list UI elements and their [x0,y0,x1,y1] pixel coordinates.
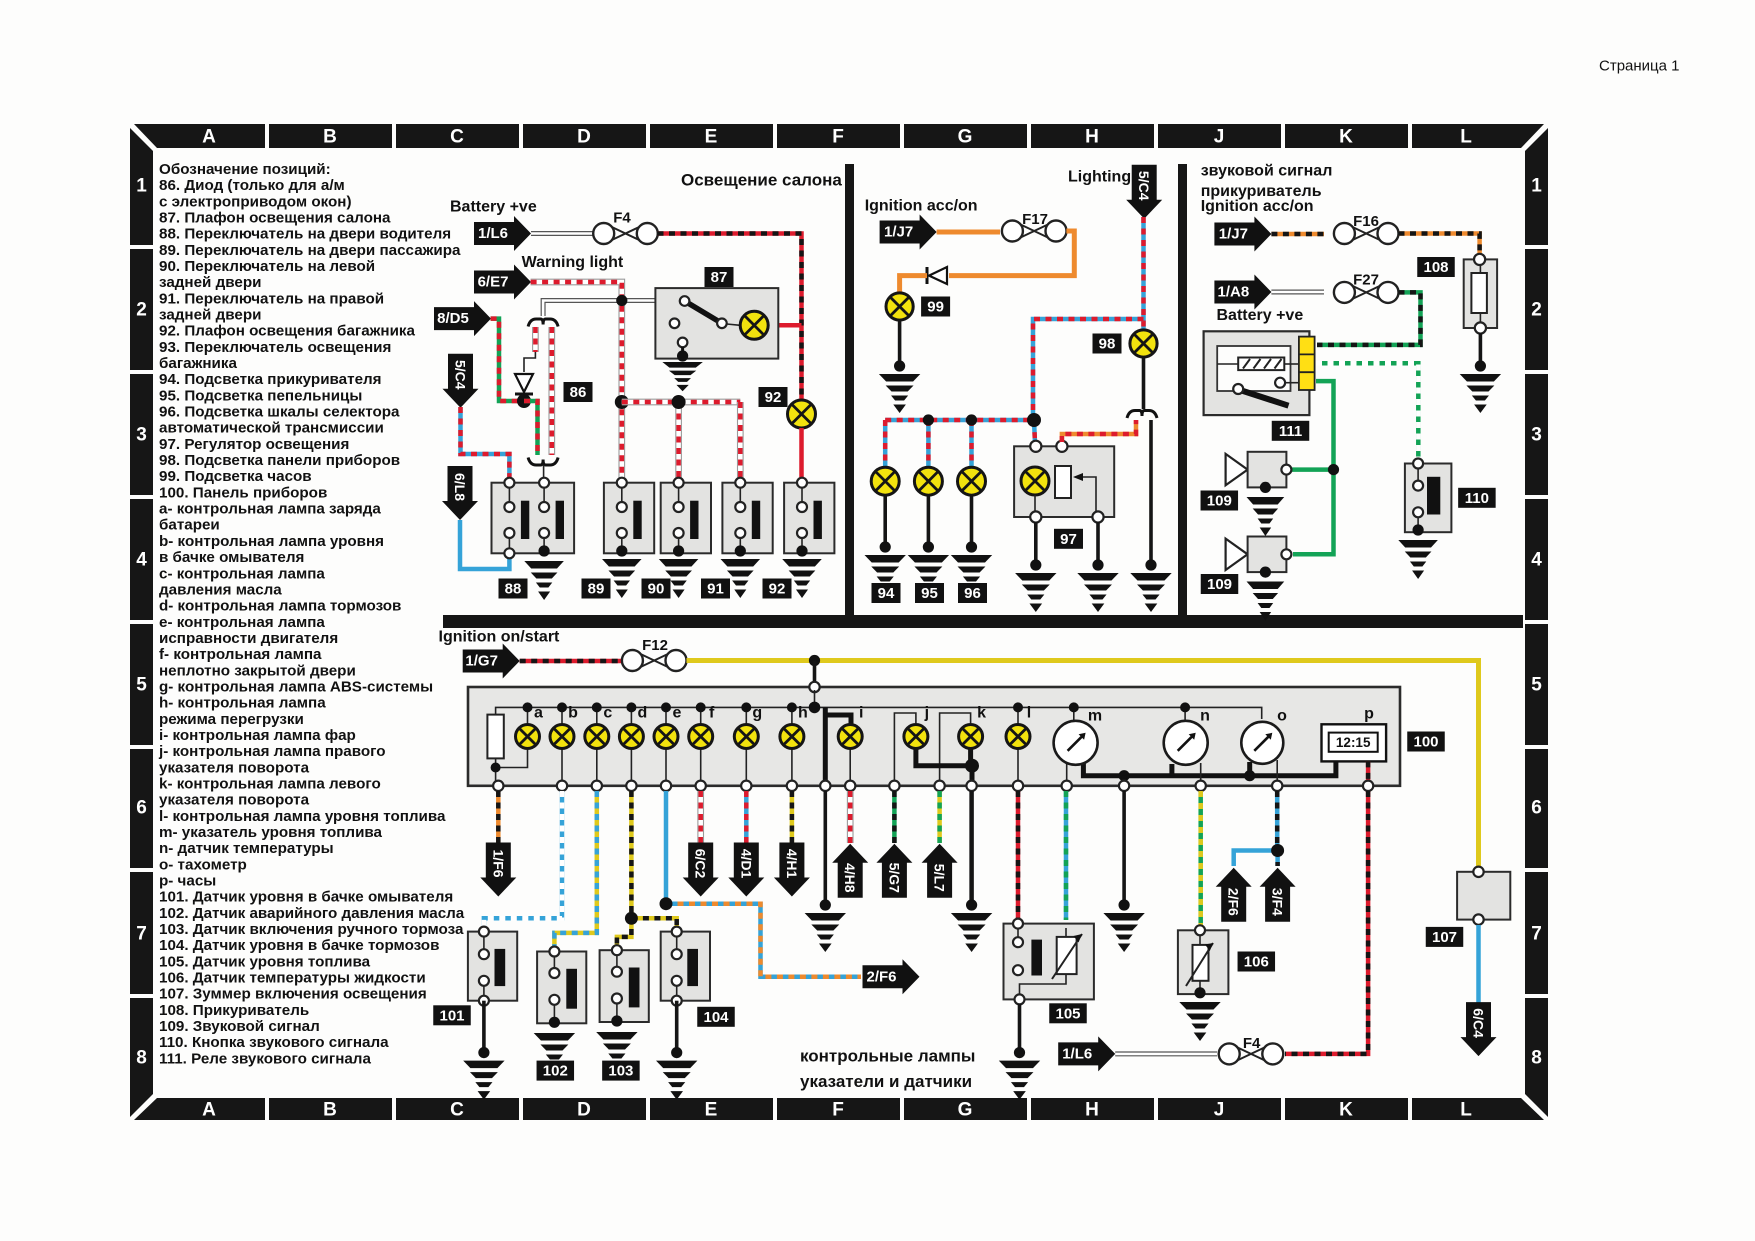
svg-text:105: 105 [1055,1005,1080,1022]
svg-text:f: f [709,705,715,722]
svg-text:86. Диод (только для а/м: 86. Диод (только для а/м [159,177,345,194]
svg-text:102. Датчик аварийного давлени: 102. Датчик аварийного давления масла [159,905,465,922]
svg-text:95. Подсветка пепельницы: 95. Подсветка пепельницы [159,387,362,404]
svg-text:багажника: багажника [159,355,237,372]
svg-text:Ignition acc/on: Ignition acc/on [865,198,978,215]
svg-text:6/C2: 6/C2 [693,849,709,879]
svg-text:k: k [977,705,986,722]
svg-text:C: C [450,127,464,148]
svg-text:d: d [638,705,648,722]
svg-text:101: 101 [439,1007,464,1024]
svg-text:g: g [752,705,762,722]
svg-text:1: 1 [1531,176,1542,197]
svg-text:n: n [1200,708,1210,725]
svg-text:контрольные лампы: контрольные лампы [800,1047,975,1066]
svg-text:исправности двигателя: исправности двигателя [159,630,338,647]
svg-text:c: c [603,705,612,722]
svg-text:давления масла: давления масла [159,581,282,598]
svg-text:F: F [832,127,844,148]
svg-text:109: 109 [1207,493,1232,510]
svg-text:102: 102 [543,1063,568,1080]
svg-text:F27: F27 [1353,272,1379,289]
svg-text:батареи: батареи [159,517,220,534]
svg-text:H: H [1085,127,1099,148]
svg-text:A: A [202,1100,216,1121]
svg-text:110: 110 [1465,490,1489,507]
svg-text:6/L8: 6/L8 [452,473,468,501]
svg-text:m: m [1088,708,1102,725]
svg-text:95: 95 [921,585,938,602]
svg-text:3: 3 [1531,425,1542,446]
svg-text:1/G7: 1/G7 [465,653,498,670]
svg-text:5: 5 [1531,675,1542,696]
svg-text:1/J7: 1/J7 [1219,226,1248,243]
svg-text:K: K [1339,1100,1353,1121]
svg-text:режима перегрузки: режима перегрузки [159,711,304,728]
svg-text:задней двери: задней двери [159,307,261,324]
svg-text:e- контрольная лампа: e- контрольная лампа [159,614,325,631]
svg-text:93. Переключатель освещения: 93. Переключатель освещения [159,339,391,356]
svg-text:104: 104 [703,1009,729,1026]
svg-text:автоматической трансмиссии: автоматической трансмиссии [159,420,384,437]
svg-text:4: 4 [1531,550,1542,571]
svg-text:p: p [1364,706,1374,723]
svg-text:5/L7: 5/L7 [932,864,948,892]
svg-text:97: 97 [1060,531,1077,548]
svg-text:p- часы: p- часы [159,872,216,889]
svg-text:i- контрольная лампа фар: i- контрольная лампа фар [159,727,356,744]
svg-text:92: 92 [765,389,782,406]
svg-text:109. Звуковой сигнал: 109. Звуковой сигнал [159,1018,320,1035]
svg-text:D: D [577,127,591,148]
svg-text:8: 8 [1531,1048,1542,1069]
svg-text:указатели и датчики: указатели и датчики [800,1072,972,1091]
svg-text:97. Регулятор освещения: 97. Регулятор освещения [159,436,349,453]
svg-text:a: a [534,705,543,722]
svg-text:104. Датчик уровня в бачке тор: 104. Датчик уровня в бачке тормозов [159,937,439,954]
svg-text:90. Переключатель на левой: 90. Переключатель на левой [159,258,375,275]
svg-text:G: G [958,127,973,148]
svg-text:F17: F17 [1022,211,1048,228]
svg-text:89. Переключатель на двери пас: 89. Переключатель на двери пассажира [159,242,461,259]
svg-text:108: 108 [1423,259,1448,276]
svg-text:2: 2 [1531,300,1542,321]
svg-text:106. Датчик температуры жидкос: 106. Датчик температуры жидкости [159,970,426,987]
svg-text:7: 7 [1531,924,1542,945]
svg-text:n- датчик температуры: n- датчик температуры [159,840,334,857]
svg-text:J: J [1214,1100,1225,1121]
svg-text:6/C4: 6/C4 [1471,1008,1487,1038]
svg-text:L: L [1460,127,1472,148]
svg-text:Обозначение позиций:: Обозначение позиций: [159,161,331,178]
svg-text:B: B [323,1100,337,1121]
svg-text:h: h [798,705,808,722]
svg-text:2/F6: 2/F6 [866,968,896,985]
svg-text:указателя поворота: указателя поворота [159,792,310,809]
svg-text:12:15: 12:15 [1336,735,1371,750]
svg-text:a- контрольная лампа заряда: a- контрольная лампа заряда [159,501,381,518]
svg-text:k- контрольная лампа левого: k- контрольная лампа левого [159,775,381,792]
svg-text:f- контрольная лампа: f- контрольная лампа [159,646,322,663]
svg-text:D: D [577,1100,591,1121]
svg-text:m- указатель уровня топлива: m- указатель уровня топлива [159,824,383,841]
svg-text:b- контрольная лампа уровня: b- контрольная лампа уровня [159,533,384,550]
svg-text:91: 91 [707,581,724,598]
svg-text:4/H1: 4/H1 [784,849,800,879]
svg-text:задней двери: задней двери [159,274,261,291]
svg-text:e: e [673,705,682,722]
svg-text:92. Плафон освещения багажника: 92. Плафон освещения багажника [159,323,416,340]
svg-text:6: 6 [136,798,147,819]
svg-text:91. Переключатель на правой: 91. Переключатель на правой [159,290,384,307]
svg-text:l- контрольная лампа уровня то: l- контрольная лампа уровня топлива [159,808,446,825]
svg-text:L: L [1460,1100,1472,1121]
svg-text:87. Плафон освещения салона: 87. Плафон освещения салона [159,210,391,227]
svg-text:звуковой сигнал: звуковой сигнал [1201,163,1333,180]
svg-text:111. Реле звукового сигнала: 111. Реле звукового сигнала [159,1050,371,1067]
svg-text:103: 103 [608,1063,633,1080]
svg-text:105. Датчик уровня топлива: 105. Датчик уровня топлива [159,953,371,970]
svg-text:96. Подсветка шкалы селектора: 96. Подсветка шкалы селектора [159,404,400,421]
svg-text:d- контрольная лампа тормозов: d- контрольная лампа тормозов [159,598,401,615]
svg-text:8/D5: 8/D5 [437,310,469,327]
svg-text:E: E [705,1100,718,1121]
svg-text:1/L6: 1/L6 [1062,1045,1092,1062]
svg-text:109: 109 [1207,576,1232,593]
svg-text:j- контрольная лампа правого: j- контрольная лампа правого [158,743,386,760]
svg-text:106: 106 [1244,954,1269,971]
svg-text:4: 4 [136,550,147,571]
svg-text:J: J [1214,127,1225,148]
svg-text:4/D1: 4/D1 [738,849,754,879]
svg-text:указателя поворота: указателя поворота [159,759,310,776]
svg-text:6/E7: 6/E7 [478,274,509,291]
svg-text:с электроприводом окон): с электроприводом окон) [159,193,352,210]
svg-text:H: H [1085,1100,1099,1121]
svg-text:1/F6: 1/F6 [490,849,506,877]
svg-text:86: 86 [570,384,587,401]
svg-text:Ignition on/start: Ignition on/start [439,629,561,646]
svg-text:100: 100 [1413,734,1438,751]
svg-text:2: 2 [136,300,147,321]
svg-text:C: C [450,1100,464,1121]
svg-text:F16: F16 [1353,213,1379,230]
svg-text:h- контрольная лампа: h- контрольная лампа [159,695,326,712]
svg-text:4/H8: 4/H8 [842,863,858,893]
svg-text:B: B [323,127,337,148]
svg-text:94: 94 [878,585,895,602]
svg-text:b: b [568,705,578,722]
svg-text:в бачке омывателя: в бачке омывателя [159,549,304,566]
svg-text:111: 111 [1279,423,1302,440]
svg-text:j: j [924,705,929,722]
svg-text:89: 89 [588,581,605,598]
svg-text:Battery +ve: Battery +ve [450,199,537,216]
svg-text:108. Прикуриватель: 108. Прикуриватель [159,1002,309,1019]
svg-text:F12: F12 [642,637,668,654]
svg-text:o: o [1277,708,1287,725]
svg-text:g- контрольная лампа ABS-систе: g- контрольная лампа ABS-системы [159,678,433,695]
svg-text:92: 92 [769,581,786,598]
svg-text:99: 99 [927,299,944,316]
svg-text:99. Подсветка часов: 99. Подсветка часов [159,468,312,485]
svg-text:103. Датчик включения ручного: 103. Датчик включения ручного тормоза [159,921,464,938]
svg-text:7: 7 [136,924,147,945]
svg-text:94. Подсветка прикуривателя: 94. Подсветка прикуривателя [159,371,382,388]
svg-text:Освещение салона: Освещение салона [681,171,842,190]
svg-text:100. Панель приборов: 100. Панель приборов [159,484,327,501]
svg-text:K: K [1339,127,1353,148]
svg-text:6: 6 [1531,798,1542,819]
svg-text:i: i [859,705,863,722]
svg-text:1/J7: 1/J7 [884,224,913,241]
svg-text:A: A [202,127,216,148]
svg-text:1/A8: 1/A8 [1218,284,1250,301]
svg-text:F4: F4 [1243,1035,1261,1052]
svg-text:8: 8 [136,1048,147,1069]
svg-text:Страница 1: Страница 1 [1599,58,1680,75]
svg-text:107. Зуммер включения освещени: 107. Зуммер включения освещения [159,986,427,1003]
svg-text:о- тахометр: о- тахометр [159,856,247,873]
svg-text:E: E [705,127,718,148]
svg-text:Battery +ve: Battery +ve [1217,307,1304,324]
svg-text:98. Подсветка панели приборов: 98. Подсветка панели приборов [159,452,400,469]
svg-text:3/F4: 3/F4 [1270,888,1286,916]
svg-text:110. Кнопка звукового сигнала: 110. Кнопка звукового сигнала [159,1034,389,1051]
svg-text:Warning light: Warning light [522,254,624,271]
svg-text:c- контрольная лампа: c- контрольная лампа [159,565,325,582]
svg-text:неплотно закрытой двери: неплотно закрытой двери [159,662,356,679]
svg-text:96: 96 [964,585,981,602]
svg-text:F: F [832,1100,844,1121]
svg-text:5: 5 [136,675,147,696]
svg-text:5/G7: 5/G7 [886,863,902,894]
svg-text:87: 87 [711,269,728,286]
svg-text:88: 88 [505,581,522,598]
svg-text:1: 1 [136,176,147,197]
svg-text:2/F6: 2/F6 [1226,888,1242,916]
svg-text:l: l [1027,705,1031,722]
svg-text:5/C4: 5/C4 [453,360,469,390]
svg-text:G: G [958,1100,973,1121]
svg-text:98: 98 [1099,336,1116,353]
svg-text:5/C4: 5/C4 [1136,171,1152,201]
svg-text:1/L6: 1/L6 [478,225,508,242]
svg-text:Lighting: Lighting [1068,169,1131,186]
svg-text:F4: F4 [613,210,631,227]
svg-text:101. Датчик уровня в бачке омы: 101. Датчик уровня в бачке омывателя [159,889,453,906]
svg-text:107: 107 [1432,929,1457,946]
svg-text:90: 90 [648,581,665,598]
svg-text:3: 3 [136,425,147,446]
svg-text:Ignition acc/on: Ignition acc/on [1201,198,1314,215]
svg-text:88. Переключатель на двери вод: 88. Переключатель на двери водителя [159,226,451,243]
